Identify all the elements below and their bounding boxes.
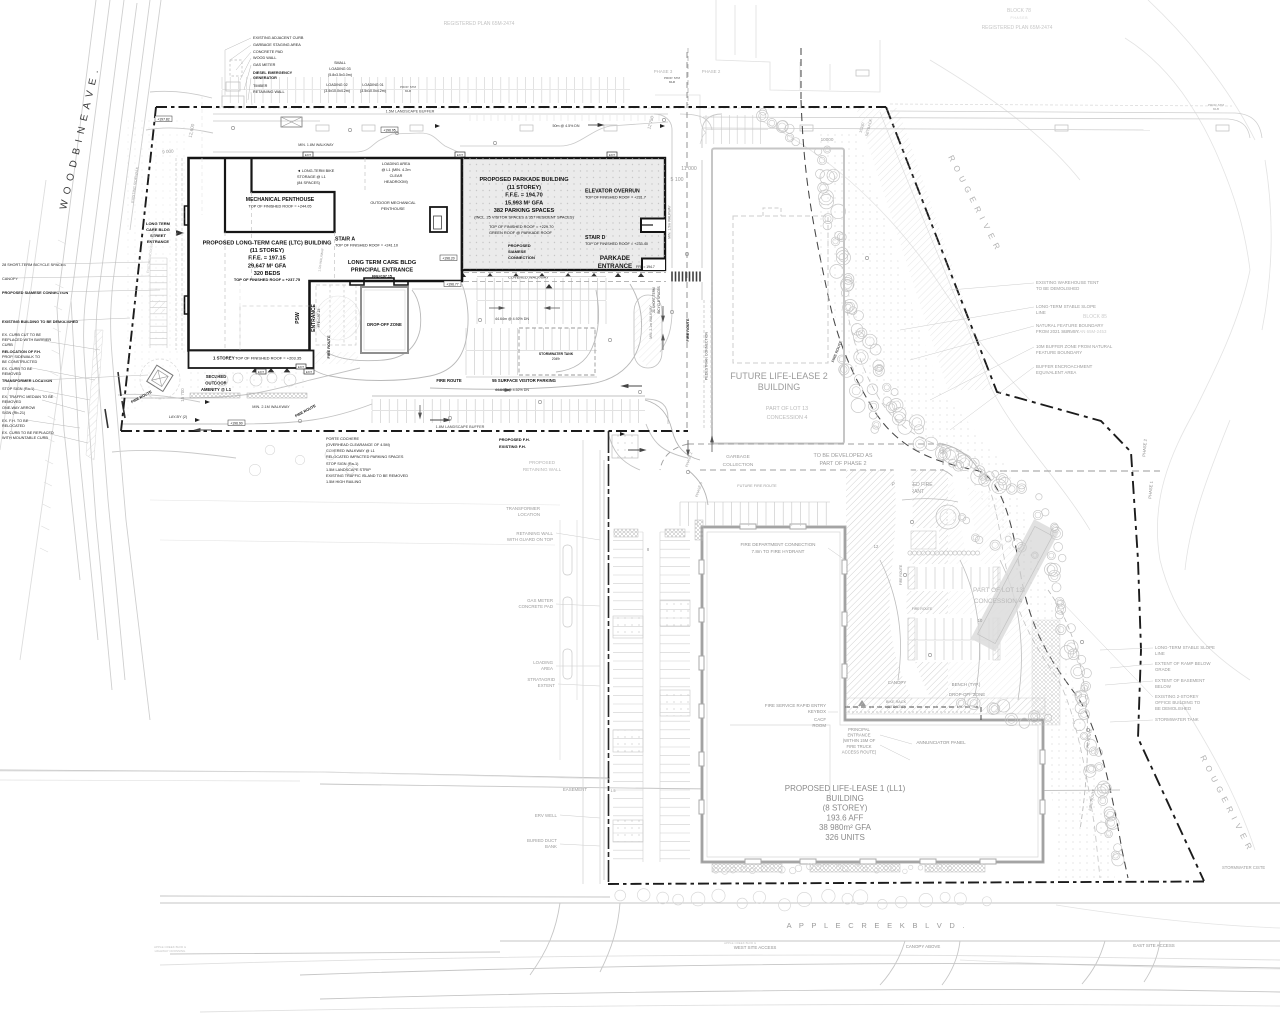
svg-text:CANOPY: CANOPY xyxy=(2,277,19,281)
svg-text:NATURAL FEATURE BOUNDARY: NATURAL FEATURE BOUNDARY xyxy=(1036,323,1103,328)
svg-text:PSW: PSW xyxy=(295,312,301,324)
svg-text:BUILDING: BUILDING xyxy=(758,382,801,392)
svg-text:APPLE CREEK BLVD &: APPLE CREEK BLVD & xyxy=(724,941,756,945)
svg-text:FIRE TRUCK: FIRE TRUCK xyxy=(846,744,871,749)
svg-text:◄ LONG-TERM BIKE: ◄ LONG-TERM BIKE xyxy=(297,169,335,173)
svg-text:STORMWATER CISTE: STORMWATER CISTE xyxy=(1222,865,1265,870)
svg-text:PHASE 3: PHASE 3 xyxy=(654,69,673,74)
svg-text:BE CONSTRUCTED: BE CONSTRUCTED xyxy=(2,360,37,364)
svg-text:(INCL. 25 VISITOR SPACES & 357: (INCL. 25 VISITOR SPACES & 357 RESIDENT … xyxy=(474,215,574,220)
svg-text:LONG-TERM STABLE SLOPE: LONG-TERM STABLE SLOPE xyxy=(1036,304,1096,309)
svg-text:50m @ 4.5% DN: 50m @ 4.5% DN xyxy=(552,124,579,128)
svg-text:11 000: 11 000 xyxy=(681,166,697,172)
svg-text:EXISTING WAREHOUSE TENT: EXISTING WAREHOUSE TENT xyxy=(1036,280,1099,285)
svg-text:FIRE ROUTE: FIRE ROUTE xyxy=(899,564,903,585)
svg-text:STOP SIGN (Ra-1): STOP SIGN (Ra-1) xyxy=(2,387,35,391)
svg-text:10000: 10000 xyxy=(821,137,834,142)
svg-text:BURIED DUCT: BURIED DUCT xyxy=(527,838,557,843)
svg-text:WOOD WALL: WOOD WALL xyxy=(253,56,277,60)
svg-text:12: 12 xyxy=(874,544,879,549)
svg-text:WEST SITE ACCESS: WEST SITE ACCESS xyxy=(734,945,777,950)
svg-text:EXISTING 2-STOREY: EXISTING 2-STOREY xyxy=(1155,694,1199,699)
svg-text:MIN. 1.5m WALKWAY: MIN. 1.5m WALKWAY xyxy=(668,205,672,239)
svg-text:(3.5x10.0x4.2m): (3.5x10.0x4.2m) xyxy=(324,89,350,93)
svg-text:LINE: LINE xyxy=(1155,651,1165,656)
svg-text:FIRE DEPARTMENT CONNECTION: FIRE DEPARTMENT CONNECTION xyxy=(740,542,815,547)
svg-text:P H A S E B: P H A S E B xyxy=(1011,16,1028,20)
svg-text:44.64m @ 4.92% DN: 44.64m @ 4.92% DN xyxy=(495,317,529,321)
svg-text:10: 10 xyxy=(978,618,983,623)
svg-text:FEATURE BOUNDARY: FEATURE BOUNDARY xyxy=(1036,350,1082,355)
svg-text:TOP OF FINISHED ROOF = +241.10: TOP OF FINISHED ROOF = +241.10 xyxy=(335,244,398,248)
svg-text:FFE=197.15: FFE=197.15 xyxy=(372,275,392,279)
svg-text:BLOCK 85: BLOCK 85 xyxy=(1083,314,1107,320)
svg-text:BUILDING: BUILDING xyxy=(826,794,864,803)
svg-text:193.6 AFF: 193.6 AFF xyxy=(827,813,864,822)
svg-text:PROPOSED PARKADE BUILDING: PROPOSED PARKADE BUILDING xyxy=(479,177,568,183)
svg-text:LOADING 01: LOADING 01 xyxy=(362,83,383,87)
svg-text:GARBAGE STAGING AREA: GARBAGE STAGING AREA xyxy=(253,43,301,47)
svg-text:+196.95: +196.95 xyxy=(383,129,395,133)
svg-text:EXISTING ADJACENT CURB: EXISTING ADJACENT CURB xyxy=(253,36,304,40)
svg-text:1.5M LANDSCAPE STRIP: 1.5M LANDSCAPE STRIP xyxy=(326,468,371,472)
svg-text:MH6: MH6 xyxy=(669,80,676,84)
svg-text:1.5: 1.5 xyxy=(611,789,616,793)
svg-text:1.5M LANDSCAPE BUFFER: 1.5M LANDSCAPE BUFFER xyxy=(386,110,435,114)
svg-text:MIN. 2.1M WALKWAY: MIN. 2.1M WALKWAY xyxy=(252,405,290,409)
svg-text:REGISTERED PLAN 65M-2474: REGISTERED PLAN 65M-2474 xyxy=(982,25,1053,31)
svg-text:STOP SIGN (Ra-1): STOP SIGN (Ra-1) xyxy=(326,462,359,466)
svg-text:CACF: CACF xyxy=(814,717,826,722)
svg-text:@ L1 (MIN. 4.2m: @ L1 (MIN. 4.2m xyxy=(382,168,411,172)
svg-text:STORMWATER TANK: STORMWATER TANK xyxy=(539,352,574,356)
svg-text:EXTENT OF BASEMENT: EXTENT OF BASEMENT xyxy=(1155,678,1205,683)
svg-text:STORMWATER TANK: STORMWATER TANK xyxy=(1155,717,1199,722)
svg-text:CURB: CURB xyxy=(2,343,13,347)
svg-text:LOADING: LOADING xyxy=(533,660,553,665)
svg-text:(OVERHEAD CLEARANCE OF 4.5M): (OVERHEAD CLEARANCE OF 4.5M) xyxy=(326,443,391,447)
svg-text:AREA: AREA xyxy=(541,666,553,671)
svg-text:DIESEL EMERGENCY: DIESEL EMERGENCY xyxy=(253,71,293,75)
svg-text:CANOPY: CANOPY xyxy=(888,680,907,685)
svg-text:ELEVATOR OVERRUN: ELEVATOR OVERRUN xyxy=(585,189,640,195)
svg-text:MH6: MH6 xyxy=(405,89,412,93)
svg-text:GAS METER: GAS METER xyxy=(527,598,553,603)
svg-text:(84 SPACES): (84 SPACES) xyxy=(297,181,321,185)
svg-text:A P P L E C R E E K B L V: A P P L E C R E E K B L V D . xyxy=(787,921,968,930)
svg-text:EX. TRAFFIC MEDIAN TO BE: EX. TRAFFIC MEDIAN TO BE xyxy=(2,395,54,399)
svg-text:PROPOSED LIFE-LEASE 1 (LL1): PROPOSED LIFE-LEASE 1 (LL1) xyxy=(785,784,906,793)
svg-text:EXIT: EXIT xyxy=(298,365,305,369)
svg-text:BENCH (TYP.): BENCH (TYP.) xyxy=(952,682,981,687)
svg-text:RELOCATED: RELOCATED xyxy=(2,424,25,428)
svg-text:55 SURFACE VISITOR PARKING: 55 SURFACE VISITOR PARKING xyxy=(492,378,556,383)
svg-text:MIN. 1.8M WALKWAY: MIN. 1.8M WALKWAY xyxy=(298,143,334,147)
svg-text:EXISTING TRAFFIC ISLAND TO BE: EXISTING TRAFFIC ISLAND TO BE REMOVED xyxy=(326,474,408,478)
svg-text:REMOVED: REMOVED xyxy=(2,372,21,376)
svg-text:TOP OF FINISHED ROOF = +233.40: TOP OF FINISHED ROOF = +233.40 xyxy=(585,242,648,246)
svg-text:PEDESTRIAN CONNECTION: PEDESTRIAN CONNECTION xyxy=(705,332,709,381)
svg-text:TIMBER: TIMBER xyxy=(253,84,268,88)
svg-text:326 UNITS: 326 UNITS xyxy=(825,833,865,842)
svg-text:LINE: LINE xyxy=(1036,310,1046,315)
svg-text:5 100: 5 100 xyxy=(671,177,684,183)
svg-text:SIAMESE: SIAMESE xyxy=(508,249,526,254)
svg-text:ERV WELL: ERV WELL xyxy=(535,813,558,818)
svg-text:7.8m TO FIRE HYDRANT: 7.8m TO FIRE HYDRANT xyxy=(752,549,805,554)
svg-text:LOADING 03: LOADING 03 xyxy=(329,67,350,71)
svg-text:PENTHOUSE: PENTHOUSE xyxy=(381,207,405,211)
svg-text:SIGN (Rb-21): SIGN (Rb-21) xyxy=(2,411,26,415)
svg-text:STORAGE @ L1: STORAGE @ L1 xyxy=(297,175,326,179)
svg-text:STAIR A: STAIR A xyxy=(335,237,355,243)
svg-text:RETAINING WALL: RETAINING WALL xyxy=(253,90,285,94)
svg-text:EAST SITE ACCESS: EAST SITE ACCESS xyxy=(1133,943,1174,948)
svg-text:BICYCLE SPACES: BICYCLE SPACES xyxy=(657,286,661,313)
svg-text:OFFICE BUILDING TO: OFFICE BUILDING TO xyxy=(1155,700,1201,705)
svg-text:PRINCIPAL ENTRANCE: PRINCIPAL ENTRANCE xyxy=(351,268,414,274)
svg-text:CONCRETE PAD: CONCRETE PAD xyxy=(253,50,283,54)
svg-text:(28 BIKES): (28 BIKES) xyxy=(887,705,907,709)
svg-text:320 BEDS: 320 BEDS xyxy=(254,271,281,277)
svg-text:1 STOREY: 1 STOREY xyxy=(213,356,235,361)
svg-text:CONCESSION 4: CONCESSION 4 xyxy=(974,598,1023,605)
svg-text:MH5: MH5 xyxy=(1213,107,1220,111)
svg-text:BANK: BANK xyxy=(545,844,557,849)
svg-text:REGISTERED PLAN 65M-2474: REGISTERED PLAN 65M-2474 xyxy=(444,21,515,27)
svg-text:CANOPY ABOVE: CANOPY ABOVE xyxy=(906,944,941,949)
svg-text:28 SHORT-TERM BICYCLE SPACES: 28 SHORT-TERM BICYCLE SPACES xyxy=(2,263,66,267)
svg-text:FIRE SERVICE RAPID ENTRY: FIRE SERVICE RAPID ENTRY xyxy=(765,703,826,708)
svg-text:PART OF LOT 13: PART OF LOT 13 xyxy=(766,406,808,412)
svg-text:(5.8x3.5x3.0m): (5.8x3.5x3.0m) xyxy=(328,73,352,77)
svg-text:REMOVED: REMOVED xyxy=(2,400,21,404)
svg-text:COLLECTION: COLLECTION xyxy=(723,462,754,468)
svg-text:EXTENT: EXTENT xyxy=(538,683,556,688)
svg-text:TRANSFORMER: TRANSFORMER xyxy=(506,506,540,511)
svg-text:EXIT: EXIT xyxy=(457,153,464,157)
svg-text:CONCESSION 4: CONCESSION 4 xyxy=(767,415,808,421)
svg-text:FIRE ROUTE: FIRE ROUTE xyxy=(912,607,933,611)
svg-text:PROP. SIDEWALK TO: PROP. SIDEWALK TO xyxy=(2,355,40,359)
svg-text:ROOM: ROOM xyxy=(812,723,826,728)
svg-text:ACCESS ROUTE): ACCESS ROUTE) xyxy=(842,749,877,754)
svg-text:HIGHWAY CROSSING: HIGHWAY CROSSING xyxy=(155,949,186,953)
svg-text:EQUIVALENT AREA: EQUIVALENT AREA xyxy=(1036,370,1076,375)
svg-text:EX. F.H. TO BE: EX. F.H. TO BE xyxy=(2,419,29,423)
svg-text:LONG TERM CARE BLDG: LONG TERM CARE BLDG xyxy=(348,260,416,266)
svg-text:TOP OF FINISHED ROOF = +237.75: TOP OF FINISHED ROOF = +237.75 xyxy=(234,277,301,282)
svg-text:PORTE COCHERE: PORTE COCHERE xyxy=(326,437,360,441)
svg-text:GRADE: GRADE xyxy=(1155,667,1171,672)
svg-text:HEADROOM): HEADROOM) xyxy=(384,180,408,184)
svg-text:TOP OF FINISHED ROOF = +229.70: TOP OF FINISHED ROOF = +229.70 xyxy=(489,224,554,229)
svg-text:ONE-WAY ARROW: ONE-WAY ARROW xyxy=(2,406,35,410)
svg-text:PROPOSED: PROPOSED xyxy=(529,460,556,465)
svg-text:CONNECTION: CONNECTION xyxy=(508,255,535,260)
svg-text:CONCRETE PAD: CONCRETE PAD xyxy=(518,604,553,609)
svg-text:(11 STOREY): (11 STOREY) xyxy=(507,185,541,191)
svg-text:TOP OF FINISHED ROOF = +231.7: TOP OF FINISHED ROOF = +231.7 xyxy=(585,196,646,200)
svg-text:EXIT: EXIT xyxy=(609,153,616,157)
svg-text:1.8M LANDSCAPE BUFFER: 1.8M LANDSCAPE BUFFER xyxy=(436,425,485,429)
svg-text:TOP OF FINISHED ROOF = +244.05: TOP OF FINISHED ROOF = +244.05 xyxy=(249,205,312,209)
svg-text:PROPOSED: PROPOSED xyxy=(508,243,531,248)
svg-text:29,647 M² GFA: 29,647 M² GFA xyxy=(248,262,286,269)
svg-text:15,993 M² GFA: 15,993 M² GFA xyxy=(505,199,543,206)
svg-text:PROPOSED LONG-TERM CARE (LTC): PROPOSED LONG-TERM CARE (LTC) BUILDING xyxy=(203,241,332,247)
svg-text:38 980m² GFA: 38 980m² GFA xyxy=(819,823,872,832)
svg-text:DROP-OFF ZONE: DROP-OFF ZONE xyxy=(367,322,402,327)
svg-text:(11 STOREY): (11 STOREY) xyxy=(250,248,284,254)
svg-text:LOADING AREA: LOADING AREA xyxy=(382,162,411,166)
svg-text:TOP OF FINISHED ROOF = +203.35: TOP OF FINISHED ROOF = +203.35 xyxy=(235,356,302,361)
svg-text:PRINCIPAL: PRINCIPAL xyxy=(848,727,870,732)
svg-text:EXISTING F.H.: EXISTING F.H. xyxy=(499,444,526,449)
svg-text:EXIT: EXIT xyxy=(305,153,312,157)
svg-text:EXTENT OF RAMP BELOW: EXTENT OF RAMP BELOW xyxy=(1155,661,1211,666)
svg-text:MECHANICAL PENTHOUSE: MECHANICAL PENTHOUSE xyxy=(246,197,315,203)
svg-text:+196.90: +196.90 xyxy=(230,422,242,426)
svg-text:CLEAR: CLEAR xyxy=(390,174,403,178)
svg-text:REG. PLAN 65M-2453: REG. PLAN 65M-2453 xyxy=(1062,329,1107,334)
svg-text:21 SHORT-TERM: 21 SHORT-TERM xyxy=(652,287,656,313)
svg-text:BE DEMOLISHED: BE DEMOLISHED xyxy=(1155,706,1191,711)
svg-text:RELOCATION OF F.H.: RELOCATION OF F.H. xyxy=(2,350,41,354)
svg-text:LAY-BY (2): LAY-BY (2) xyxy=(169,415,188,419)
svg-text:FIRE ROUTE: FIRE ROUTE xyxy=(686,318,690,341)
svg-text:FFE = 194.7: FFE = 194.7 xyxy=(636,265,655,269)
svg-text:F.F.E. = 197.15: F.F.E. = 197.15 xyxy=(248,256,285,262)
svg-text:ANNUNCIATOR PANEL: ANNUNCIATOR PANEL xyxy=(916,740,966,745)
svg-text:STAIR D: STAIR D xyxy=(585,235,606,241)
svg-text:RETAINING WALL: RETAINING WALL xyxy=(516,531,553,536)
svg-text:COVERED WALKWAY: COVERED WALKWAY xyxy=(508,275,549,280)
svg-text:F.F.E. = 194.70: F.F.E. = 194.70 xyxy=(505,193,542,199)
svg-text:ENTRANCE: ENTRANCE xyxy=(598,263,632,270)
svg-text:LOCATION: LOCATION xyxy=(518,512,540,517)
svg-text:382 PARKING SPACES: 382 PARKING SPACES xyxy=(494,208,555,214)
svg-text:FUTURE FIRE ROUTE: FUTURE FIRE ROUTE xyxy=(737,484,777,488)
svg-text:PHASE 2: PHASE 2 xyxy=(702,69,721,74)
svg-text:BIKE RACK: BIKE RACK xyxy=(886,700,907,704)
svg-text:+196.20: +196.20 xyxy=(442,257,454,261)
svg-text:TO BE DEVELOPED AS: TO BE DEVELOPED AS xyxy=(814,453,873,459)
svg-text:GENERATOR: GENERATOR xyxy=(253,76,277,80)
svg-text:GREEN ROOF @ PARKADE ROOF: GREEN ROOF @ PARKADE ROOF xyxy=(489,230,553,235)
svg-text:LOADING 02: LOADING 02 xyxy=(326,83,347,87)
svg-text:REPLACED WITH BARRIER: REPLACED WITH BARRIER xyxy=(2,338,51,342)
svg-text:(8 STOREY): (8 STOREY) xyxy=(823,804,868,813)
svg-text:SMALL: SMALL xyxy=(334,61,346,65)
svg-text:RETAINING WALL: RETAINING WALL xyxy=(523,467,562,472)
svg-text:BLOCK 78: BLOCK 78 xyxy=(1007,8,1031,14)
svg-text:BUFFER ENCROACHMENT: BUFFER ENCROACHMENT xyxy=(1036,364,1093,369)
svg-text:FIRE ROUTE: FIRE ROUTE xyxy=(436,378,462,383)
svg-text:LONG-TERM STABLE SLOPE: LONG-TERM STABLE SLOPE xyxy=(1155,645,1215,650)
svg-text:GAS METER: GAS METER xyxy=(253,63,276,67)
svg-text:BELOW: BELOW xyxy=(1155,684,1172,689)
svg-text:KEYBOX: KEYBOX xyxy=(808,709,826,714)
svg-text:PROPOSED F.H.: PROPOSED F.H. xyxy=(499,437,530,442)
svg-text:15 700: 15 700 xyxy=(180,388,185,402)
svg-text:WITH MOUNTABLE CURB: WITH MOUNTABLE CURB xyxy=(2,436,48,440)
svg-text:STRATAGRID: STRATAGRID xyxy=(527,677,555,682)
svg-text:WITH GUARD ON TOP: WITH GUARD ON TOP xyxy=(507,537,553,542)
svg-text:EX. CURB TO BE: EX. CURB TO BE xyxy=(2,367,33,371)
svg-text:(3.5x10.0x4.2m): (3.5x10.0x4.2m) xyxy=(360,89,386,93)
svg-text:FUTURE LIFE-LEASE 2: FUTURE LIFE-LEASE 2 xyxy=(730,371,828,381)
svg-text:PROPOSED SIAMESE CONNECTION: PROPOSED SIAMESE CONNECTION xyxy=(2,291,69,295)
svg-text:PARKADE: PARKADE xyxy=(600,255,630,262)
svg-text:2049³: 2049³ xyxy=(552,357,560,361)
svg-text:ENTRANCE: ENTRANCE xyxy=(847,733,870,738)
svg-text:EX. CURB CUT TO BE: EX. CURB CUT TO BE xyxy=(2,333,42,337)
svg-text:PART OF PHASE 2: PART OF PHASE 2 xyxy=(819,461,866,467)
svg-text:10M BUFFER ZONE FROM NATURAL: 10M BUFFER ZONE FROM NATURAL xyxy=(1036,344,1113,349)
svg-text:GARBAGE: GARBAGE xyxy=(726,454,750,460)
svg-text:OUTDOOR MECHANICAL: OUTDOOR MECHANICAL xyxy=(370,201,415,205)
svg-text:1.5M HIGH RAILING: 1.5M HIGH RAILING xyxy=(326,480,361,484)
svg-text:(WITHIN 15M OF: (WITHIN 15M OF xyxy=(843,738,876,743)
svg-text:PART OF LOT 13: PART OF LOT 13 xyxy=(973,587,1023,594)
svg-text:TO BE DEMOLISHED: TO BE DEMOLISHED xyxy=(1036,286,1079,291)
svg-text:+196.77: +196.77 xyxy=(446,283,458,287)
svg-text:EASEMENT: EASEMENT xyxy=(563,787,587,792)
svg-text:RELOCATED IMPACTED PARKING SPA: RELOCATED IMPACTED PARKING SPACES xyxy=(326,455,404,459)
